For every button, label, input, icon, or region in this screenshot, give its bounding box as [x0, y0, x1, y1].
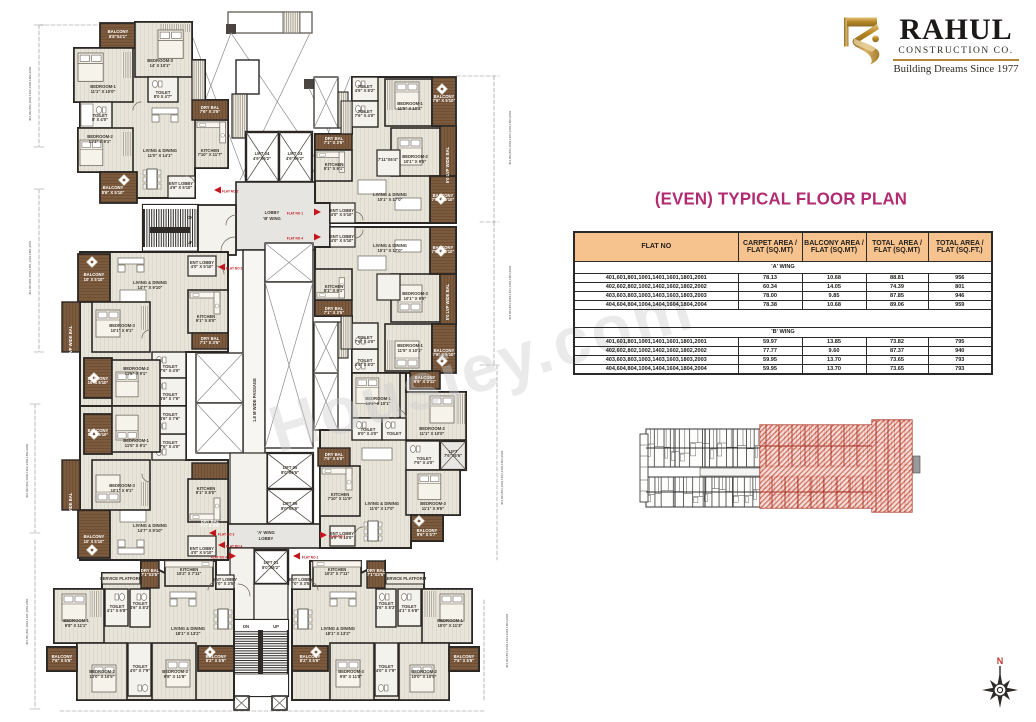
- svg-text:10'1" X 17'0": 10'1" X 17'0": [377, 197, 402, 202]
- svg-text:8'0 X 4'7": 8'0 X 4'7": [154, 94, 172, 99]
- svg-text:10'0" X 10'5": 10'0" X 10'5": [89, 674, 114, 679]
- svg-text:7'6" X 6'0": 7'6" X 6'0": [324, 456, 344, 461]
- svg-text:6'0" X 3'5": 6'0" X 3'5": [215, 581, 235, 586]
- svg-text:403,603,803,1003,1403,1603,180: 403,603,803,1003,1403,1603,1803,2003: [500, 450, 504, 505]
- svg-text:7'0" X 3'5": 7'0" X 3'5": [291, 581, 311, 586]
- svg-text:LOBBY: LOBBY: [265, 210, 280, 215]
- svg-text:FLAT NO 3: FLAT NO 3: [218, 533, 234, 537]
- svg-text:402,402,802,1002,1402,1602,180: 402,402,802,1002,1402,1602,1802,2002: [28, 66, 32, 121]
- svg-text:LOBBY: LOBBY: [259, 536, 274, 541]
- svg-text:8'1" X 9'1": 8'1" X 9'1": [324, 288, 344, 293]
- svg-text:14'7" X 9'10": 14'7" X 9'10": [137, 528, 162, 533]
- svg-text:10'0" X 10'5": 10'0" X 10'5": [411, 674, 436, 679]
- svg-text:4'1" X 6'8": 4'1" X 6'8": [399, 608, 419, 613]
- svg-text:UP: UP: [273, 624, 279, 629]
- svg-text:7'6" X 4'0": 7'6" X 4'0": [160, 444, 180, 449]
- svg-text:403,603,803,1003,1403,1603,180: 403,603,803,1003,1403,1603,1803,2003: [508, 110, 512, 165]
- svg-text:11'5" X 9'1": 11'5" X 9'1": [125, 371, 148, 376]
- svg-text:4'1" X 6'8": 4'1" X 6'8": [107, 608, 127, 613]
- svg-text:7'6" X 5'10": 7'6" X 5'10": [432, 249, 455, 254]
- svg-text:7'6" X 4'0": 7'6" X 4'0": [355, 113, 375, 118]
- svg-text:4'6" X 8'2": 4'6" X 8'2": [355, 88, 375, 93]
- svg-text:7'1" X 3'5": 7'1" X 3'5": [324, 310, 344, 315]
- svg-text:9'8" X 11'1": 9'8" X 11'1": [65, 623, 88, 628]
- svg-text:5'0 LVP WIDE BAL: 5'0 LVP WIDE BAL: [445, 283, 450, 320]
- svg-text:FLAT NO 1: FLAT NO 1: [302, 556, 318, 560]
- svg-text:401,401,801,1001,1401,1601,180: 401,401,801,1001,1401,1601,1801,2001: [28, 240, 32, 295]
- svg-text:10'2" X 7'11": 10'2" X 7'11": [177, 571, 202, 576]
- svg-text:FLAT NO 2: FLAT NO 2: [329, 535, 345, 539]
- svg-text:7'6" X 3'5": 7'6" X 3'5": [200, 109, 220, 114]
- svg-text:4'6" X 7'6": 4'6" X 7'6": [160, 396, 180, 401]
- svg-text:FLAT NO 2: FLAT NO 2: [222, 190, 238, 194]
- svg-text:7'1"X3'5": 7'1"X3'5": [141, 572, 159, 577]
- svg-text:7'6" X 5'6": 7'6" X 5'6": [52, 658, 72, 663]
- svg-text:9'6" X 5'7": 9'6" X 5'7": [417, 532, 437, 537]
- svg-text:7'10" X 11'9": 7'10" X 11'9": [328, 496, 353, 501]
- svg-text:DN: DN: [243, 624, 249, 629]
- svg-text:4'9"X6'2": 4'9"X6'2": [253, 156, 271, 161]
- svg-text:404,604,804,1004,1404,1604,180: 404,604,804,1004,1404,1604,1804,2004: [508, 265, 512, 320]
- svg-text:9'8" X 11'8": 9'8" X 11'8": [164, 674, 187, 679]
- svg-text:8'0"X6'6": 8'0"X6'6": [281, 506, 299, 511]
- svg-text:FLAT NO 4: FLAT NO 4: [211, 556, 227, 560]
- svg-text:11'1" X 10'0": 11'1" X 10'0": [420, 431, 445, 436]
- svg-text:FLAT NO 3: FLAT NO 3: [226, 267, 242, 271]
- svg-text:7'1" X 3'5": 7'1" X 3'5": [200, 340, 220, 345]
- svg-text:SERVICE PLATFORM: SERVICE PLATFORM: [100, 576, 143, 581]
- svg-text:'A' WING: 'A' WING: [257, 530, 275, 535]
- svg-text:14'7" X 9'10": 14'7" X 9'10": [137, 285, 162, 290]
- svg-text:10'1" X 17'0": 10'1" X 17'0": [377, 248, 402, 253]
- svg-text:7'10" X 11'7": 7'10" X 11'7": [198, 152, 223, 157]
- svg-text:10'2" X 7'11": 10'2" X 7'11": [325, 571, 350, 576]
- svg-text:N: N: [997, 656, 1004, 666]
- svg-text:7'6" X 4'0": 7'6" X 4'0": [414, 460, 434, 465]
- svg-text:8'6" X 5'10": 8'6" X 5'10": [102, 190, 125, 195]
- svg-text:4'9"X6'2": 4'9"X6'2": [286, 156, 304, 161]
- svg-text:8'2" X 5'6": 8'2" X 5'6": [206, 658, 226, 663]
- svg-text:7'6" X 5'6": 7'6" X 5'6": [454, 658, 474, 663]
- svg-text:10' X 5'10": 10' X 5'10": [84, 539, 105, 544]
- svg-text:7'6" X 4'0": 7'6" X 4'0": [355, 339, 375, 344]
- svg-text:11'1" X 9'1": 11'1" X 9'1": [89, 139, 112, 144]
- svg-text:10' X 5'10": 10' X 5'10": [84, 277, 105, 282]
- svg-text:4'6" X 8'3": 4'6" X 8'3": [130, 605, 150, 610]
- svg-text:4'0" X 7'9": 4'0" X 7'9": [376, 668, 396, 673]
- svg-text:UP: UP: [187, 240, 193, 245]
- svg-text:27'5 LVP WIDE BAL: 27'5 LVP WIDE BAL: [68, 325, 73, 364]
- svg-text:7'6"X6'6": 7'6"X6'6": [444, 453, 462, 458]
- svg-text:10'1" X 9'5": 10'1" X 9'5": [404, 159, 427, 164]
- svg-text:4'0" X 7'9": 4'0" X 7'9": [130, 668, 150, 673]
- svg-text:5'0 LVP WIDE BAL: 5'0 LVP WIDE BAL: [445, 146, 450, 183]
- svg-text:4'0" X 5'10": 4'0" X 5'10": [331, 212, 354, 217]
- svg-text:FLAT NO 1: FLAT NO 1: [287, 212, 303, 216]
- svg-text:401,401,801,1001,1401,1801,200: 401,401,801,1001,1401,1801,2001: [25, 598, 29, 645]
- svg-text:4'6" X 8'3": 4'6" X 8'3": [376, 605, 396, 610]
- svg-text:10'1" X 9'5": 10'1" X 9'5": [404, 296, 427, 301]
- svg-text:11'0" X 14'1": 11'0" X 14'1": [148, 153, 173, 158]
- svg-text:DN: DN: [187, 215, 193, 220]
- svg-text:SERVICE PLATFORM: SERVICE PLATFORM: [384, 576, 427, 581]
- svg-text:10' X 5'10": 10' X 5'10": [88, 432, 109, 437]
- svg-text:7'1" X 3'5": 7'1" X 3'5": [324, 140, 344, 145]
- svg-text:6'8"X4'1": 6'8"X4'1": [109, 34, 127, 39]
- svg-text:10'1" X 9'1": 10'1" X 9'1": [111, 488, 134, 493]
- svg-text:7'6" X 5'10": 7'6" X 5'10": [433, 98, 456, 103]
- svg-text:9'8" X 11'8": 9'8" X 11'8": [340, 674, 363, 679]
- svg-text:4'6" X 7'6": 4'6" X 7'6": [160, 416, 180, 421]
- svg-text:9'1" X 8'0": 9'1" X 8'0": [196, 490, 216, 495]
- svg-text:4'0" X 5'10": 4'0" X 5'10": [191, 550, 214, 555]
- svg-text:8'2" X 5'6": 8'2" X 5'6": [300, 658, 320, 663]
- svg-text:11'1" X 10'0": 11'1" X 10'0": [91, 89, 116, 94]
- svg-text:7'6" X 4'0": 7'6" X 4'0": [160, 368, 180, 373]
- svg-text:18'1" X 13'2": 18'1" X 13'2": [175, 631, 200, 636]
- svg-text:8'0"X6'2": 8'0"X6'2": [262, 565, 280, 570]
- svg-text:8'0"X6'6": 8'0"X6'6": [281, 470, 299, 475]
- svg-text:11'0" X 17'0": 11'0" X 17'0": [370, 506, 395, 511]
- svg-text:7'1" X 3'5": 7'1" X 3'5": [200, 523, 220, 528]
- svg-text:404,604,804,1004,1404,1604,180: 404,604,804,1004,1404,1604,1804,2004: [505, 613, 509, 668]
- svg-text:4'6" X 5'10": 4'6" X 5'10": [170, 185, 193, 190]
- svg-text:11'5" X 9'1": 11'5" X 9'1": [125, 443, 148, 448]
- svg-text:4'0" X 5'10": 4'0" X 5'10": [191, 264, 214, 269]
- svg-text:FLAT NO 4: FLAT NO 4: [287, 237, 303, 241]
- svg-text:18'1" X 13'2": 18'1" X 13'2": [325, 631, 350, 636]
- svg-text:10'0" X 11'3": 10'0" X 11'3": [438, 623, 463, 628]
- svg-text:8'1" X 9'1": 8'1" X 9'1": [324, 166, 344, 171]
- svg-text:10' X 5'10": 10' X 5'10": [88, 380, 109, 385]
- svg-text:FLAT NO 4: FLAT NO 4: [226, 545, 242, 549]
- svg-text:7'6" X 5'10": 7'6" X 5'10": [432, 197, 455, 202]
- svg-text:4'0" X 5'10": 4'0" X 5'10": [331, 238, 354, 243]
- svg-text:11'5" X 10'1": 11'5" X 10'1": [398, 106, 423, 111]
- svg-text:7'1"X3'5": 7'1"X3'5": [367, 572, 385, 577]
- svg-text:11'1" X 9'5": 11'1" X 9'5": [422, 506, 445, 511]
- svg-text:7'11"X6'4": 7'11"X6'4": [378, 157, 398, 162]
- svg-text:8' X 4'0": 8' X 4'0": [92, 117, 108, 122]
- svg-text:1.8 M WIDE PASSAGE: 1.8 M WIDE PASSAGE: [252, 378, 257, 422]
- svg-text:14' X 10'1": 14' X 10'1": [150, 63, 171, 68]
- svg-text:9'1" X 8'0": 9'1" X 8'0": [196, 318, 216, 323]
- svg-text:27'5 LVP WIDE BAL: 27'5 LVP WIDE BAL: [68, 492, 73, 531]
- svg-text:'B' WING: 'B' WING: [263, 216, 281, 221]
- svg-text:10'1" X 9'1": 10'1" X 9'1": [111, 328, 134, 333]
- svg-text:402,402,802,1002,1402,1602,180: 402,402,802,1002,1402,1602,1802,2002: [25, 443, 29, 498]
